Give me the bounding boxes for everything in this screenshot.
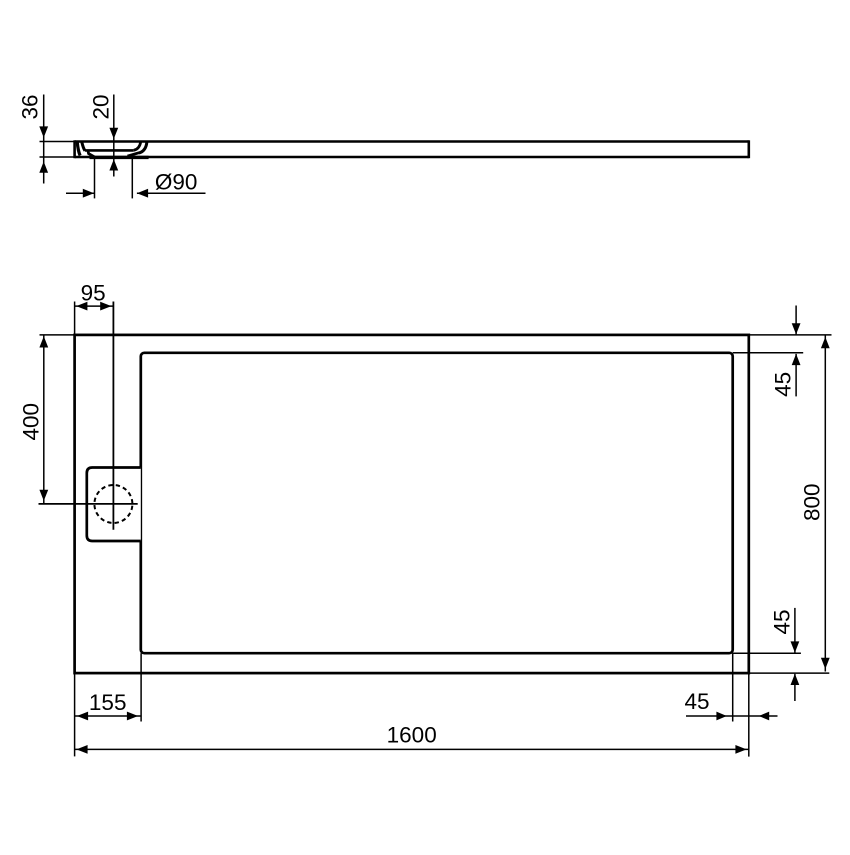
svg-text:20: 20: [89, 94, 114, 119]
svg-text:400: 400: [18, 403, 43, 441]
svg-text:45: 45: [684, 689, 709, 714]
svg-text:95: 95: [81, 280, 106, 305]
svg-text:36: 36: [18, 94, 43, 119]
svg-text:45: 45: [770, 609, 795, 634]
svg-text:155: 155: [89, 690, 127, 715]
svg-text:Ø90: Ø90: [155, 170, 198, 195]
svg-text:45: 45: [770, 372, 795, 397]
svg-text:1600: 1600: [387, 722, 437, 747]
svg-text:800: 800: [799, 483, 824, 521]
